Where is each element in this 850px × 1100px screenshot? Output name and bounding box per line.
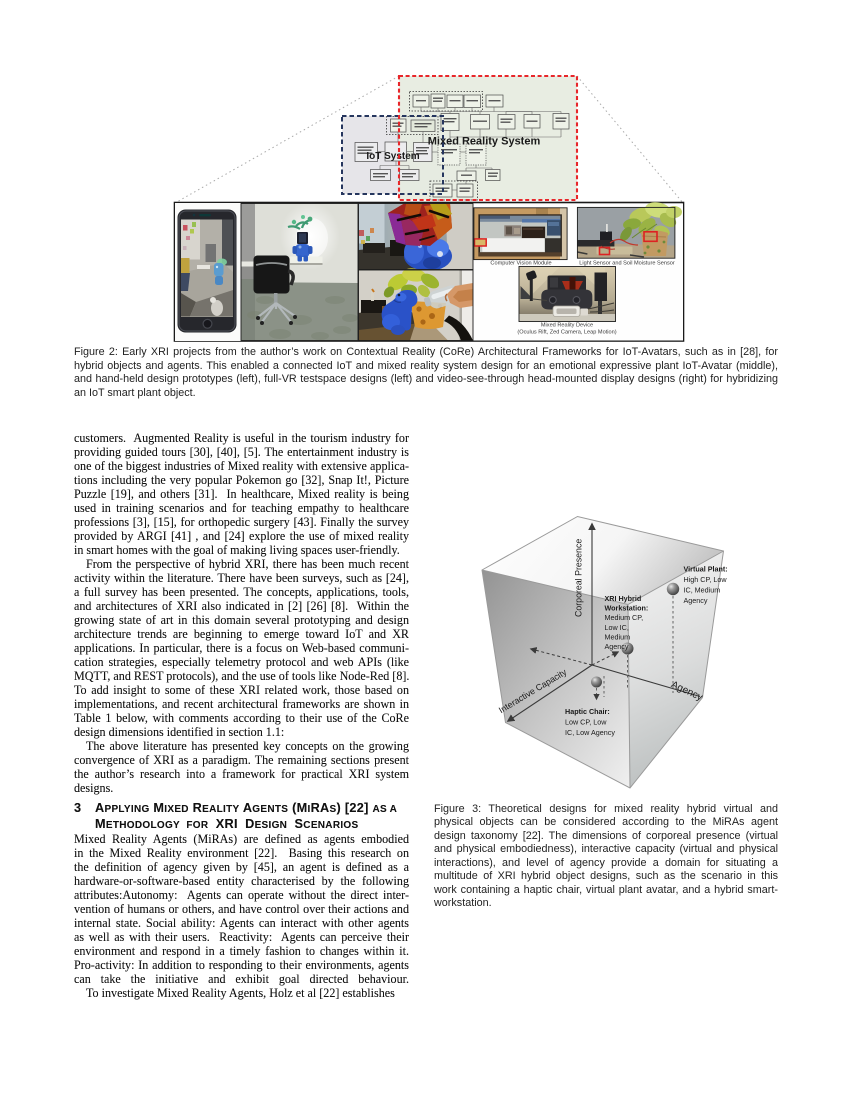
svg-text:XRI Hybrid: XRI Hybrid xyxy=(605,594,642,603)
svg-text:Light Sensor and Soil Moisture: Light Sensor and Soil Moisture Sensor xyxy=(579,261,675,267)
svg-text:Mixed Reality System: Mixed Reality System xyxy=(428,136,541,148)
svg-text:IC, Low Agency: IC, Low Agency xyxy=(565,728,615,737)
svg-text:IC, Medium: IC, Medium xyxy=(684,586,721,595)
svg-text:Low CP, Low: Low CP, Low xyxy=(565,718,607,727)
svg-text:High CP, Low: High CP, Low xyxy=(684,575,728,584)
svg-text:Medium CP,: Medium CP, xyxy=(605,613,644,622)
svg-text:Corporeal Presence: Corporeal Presence xyxy=(574,539,584,617)
svg-text:Haptic Chair:: Haptic Chair: xyxy=(565,707,610,716)
svg-text:Computer Vision Module: Computer Vision Module xyxy=(490,261,551,267)
svg-text:Low IC,: Low IC, xyxy=(605,623,629,632)
svg-text:Mixed Reality Device: Mixed Reality Device xyxy=(541,323,593,329)
svg-text:Agency: Agency xyxy=(684,596,708,605)
svg-text:Medium: Medium xyxy=(605,632,631,641)
svg-text:Virtual Plant:: Virtual Plant: xyxy=(684,565,728,574)
svg-text:Agency: Agency xyxy=(605,642,629,651)
svg-text:(Oculus Rift, Zed Camera, Leap: (Oculus Rift, Zed Camera, Leap Motion) xyxy=(517,330,616,336)
svg-text:IoT System: IoT System xyxy=(366,151,419,162)
svg-text:Workstation:: Workstation: xyxy=(605,604,649,613)
